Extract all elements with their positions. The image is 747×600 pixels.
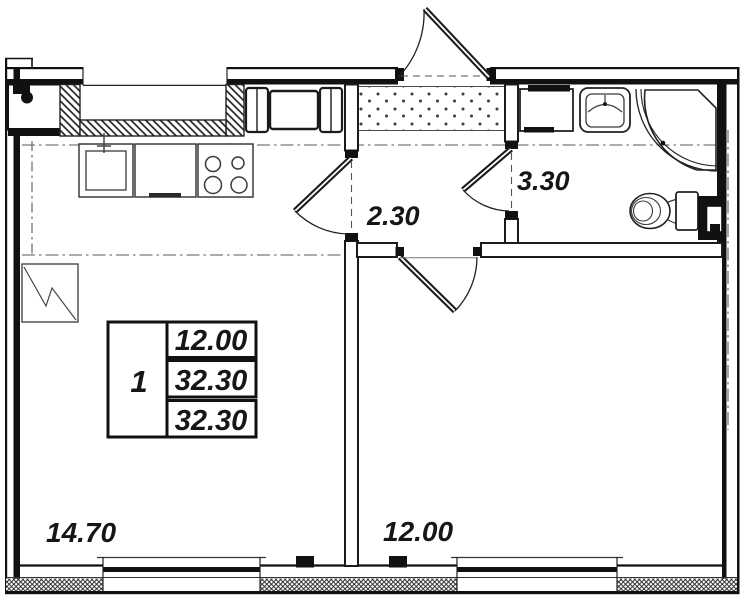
wall-marker: [296, 556, 314, 568]
wall-marker: [389, 556, 407, 568]
hatched-wall-block: [226, 85, 244, 137]
toilet-cistern: [676, 192, 698, 230]
window-glass: [457, 567, 617, 572]
shower-handle-dot: [661, 141, 666, 146]
plumbing-shaft: [698, 196, 722, 240]
living-area-value: 12.00: [175, 325, 248, 357]
bathroom-area-label: 3.30: [517, 166, 570, 196]
room-divider-wall: [345, 241, 358, 566]
total-area-value: 32.30: [175, 365, 248, 397]
hatched-wall-block: [60, 85, 80, 137]
toilet: [630, 192, 698, 230]
built-in-cabinet-block: [246, 88, 342, 132]
entry-dotted-zone: [358, 86, 505, 131]
bedroom-area-label: 12.00: [383, 516, 453, 547]
bathroom-left-wall-bottom: [505, 219, 518, 243]
floor-plan-page: 1 12.00 32.30 32.30 14.70 12.00 2.30 3.3…: [0, 0, 747, 600]
window-glass: [103, 567, 260, 572]
kitchen-counter-cabinet: [135, 144, 196, 197]
hallway-area-label: 2.30: [366, 201, 420, 231]
washing-machine: [520, 89, 573, 131]
wall-pier-hatch: [617, 579, 737, 592]
total-area-with-summer-value: 32.30: [175, 405, 248, 437]
wall-pier-hatch: [6, 579, 103, 592]
bathroom-sink: [580, 88, 630, 132]
kitchen-living-area-label: 14.70: [46, 517, 116, 548]
wall-pier-hatch: [260, 579, 457, 592]
floor-plan-drawing: 1 12.00 32.30 32.30 14.70 12.00 2.30 3.3…: [0, 0, 747, 600]
room-count-value: 1: [130, 364, 147, 399]
bathroom-left-wall-top: [505, 85, 518, 142]
area-table: 1 12.00 32.30 32.30: [108, 322, 256, 437]
hallway-left-wall-top: [345, 85, 358, 151]
cabinet-handle: [149, 193, 181, 198]
hallway-bottom-wall-right: [481, 243, 722, 257]
hallway-bottom-wall-left: [357, 243, 397, 257]
pipe-riser-icon: [21, 92, 33, 104]
kitchen-sink-bowl: [86, 151, 126, 190]
hatched-wall-strip: [80, 120, 226, 136]
